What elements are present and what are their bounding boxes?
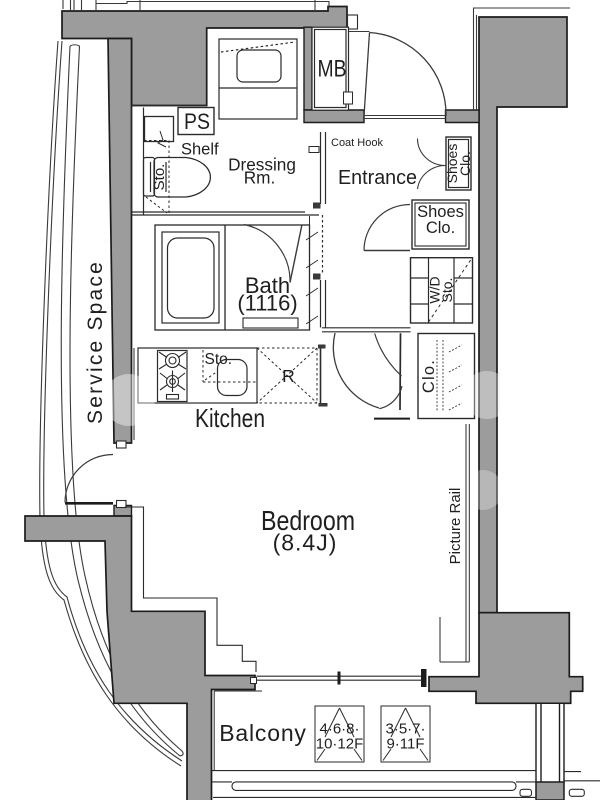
svg-text:Clo.: Clo.: [426, 219, 455, 237]
svg-text:Balcony: Balcony: [219, 720, 306, 746]
svg-text:PS: PS: [184, 109, 210, 134]
svg-text:Coat Hook: Coat Hook: [331, 137, 383, 149]
svg-text:9·11F: 9·11F: [386, 736, 424, 753]
svg-text:Rm.: Rm.: [244, 168, 276, 188]
svg-text:Clo.: Clo.: [420, 359, 438, 393]
svg-text:(1116): (1116): [237, 291, 297, 316]
svg-text:Kitchen: Kitchen: [195, 403, 265, 433]
svg-text:Picture Rail: Picture Rail: [447, 488, 464, 565]
svg-text:R: R: [282, 366, 295, 386]
svg-text:W/DSto.: W/DSto.: [427, 276, 456, 303]
svg-text:10·12F: 10·12F: [316, 736, 364, 753]
svg-text:Service Space: Service Space: [84, 260, 107, 424]
svg-text:Entrance: Entrance: [338, 166, 417, 189]
svg-text:MB: MB: [318, 56, 347, 83]
svg-text:Shelf: Shelf: [181, 141, 219, 159]
svg-text:(8.4J): (8.4J): [273, 530, 338, 556]
svg-text:Sto.: Sto.: [151, 164, 168, 191]
